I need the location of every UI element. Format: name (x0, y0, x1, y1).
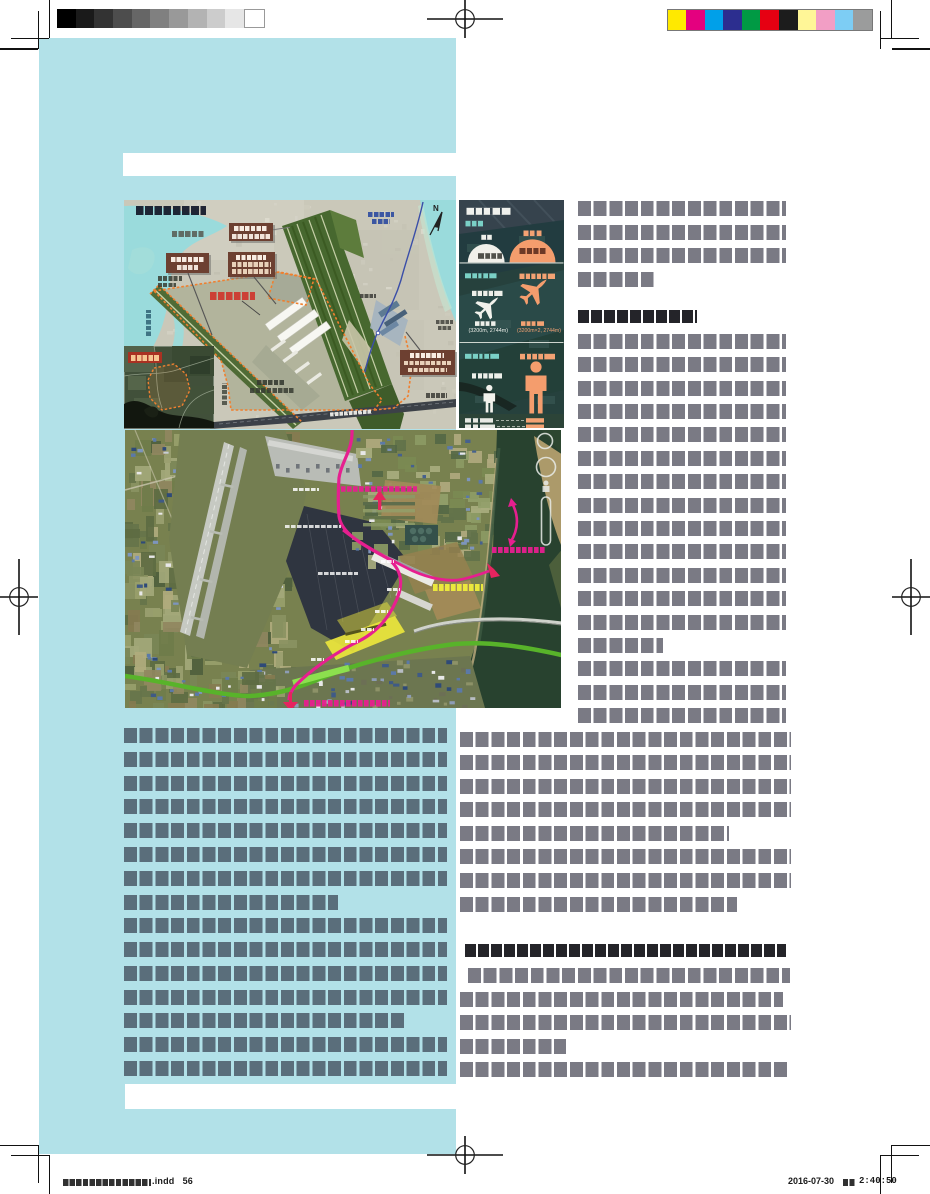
svg-text:(3200m×2, 2744m): (3200m×2, 2744m) (517, 327, 561, 333)
svg-text:(3200m, 2744m): (3200m, 2744m) (469, 327, 509, 333)
svg-text:N: N (433, 204, 439, 213)
